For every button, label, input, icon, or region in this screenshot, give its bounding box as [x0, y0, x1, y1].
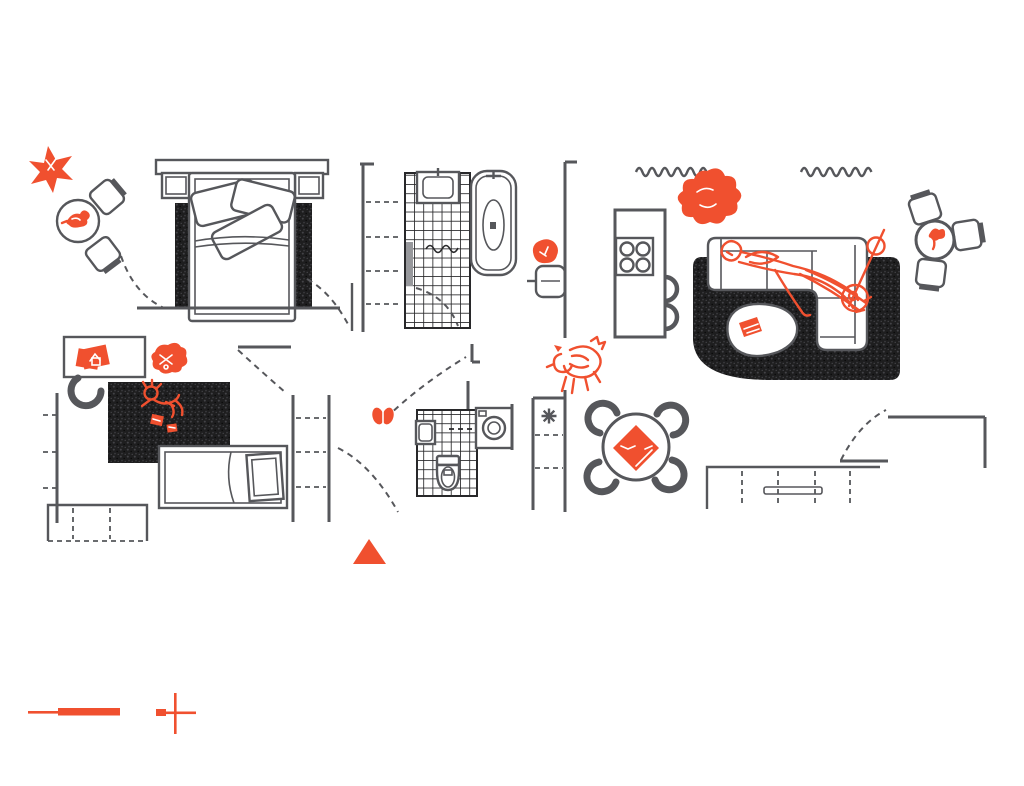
door-arc [121, 256, 164, 308]
bar-stool [665, 277, 677, 301]
dog [547, 337, 605, 393]
bedroom-kids [43, 337, 398, 541]
curtain-wave-left [636, 168, 706, 176]
terrace-right [707, 410, 985, 509]
closet-left [43, 393, 57, 523]
coffee-table [727, 304, 797, 356]
closet-mid [293, 395, 329, 522]
bathroom-wall-right [565, 162, 577, 338]
closet-shelves [366, 202, 399, 304]
asterisk-symbol [542, 409, 557, 424]
balcony-left [29, 146, 127, 274]
plan-marks [28, 693, 196, 734]
balcony-right-chair [915, 258, 946, 289]
toy-scribble [151, 343, 187, 374]
crosshair [156, 693, 196, 734]
bathtub [471, 171, 516, 275]
door-arc [841, 410, 886, 460]
balcony-right-chair [952, 219, 984, 251]
star-plant [29, 146, 73, 193]
living-room [693, 230, 900, 380]
curtain-wave-right [801, 168, 871, 176]
balcony-left-chair [84, 235, 123, 274]
bedroom-primary [121, 160, 399, 332]
closet-wall [360, 164, 374, 332]
single-bed [159, 446, 287, 508]
wall-cabinet [527, 266, 565, 297]
desk-chair [71, 378, 101, 406]
bathroom-main [405, 162, 577, 338]
butterfly [371, 406, 396, 425]
utility-closet [533, 390, 565, 512]
entrance-triangle [353, 539, 386, 564]
potted-plant [678, 168, 742, 224]
balcony-left-chair [88, 177, 127, 216]
hallway-marks [353, 406, 395, 564]
washing-machine [476, 408, 512, 448]
dresser [48, 505, 147, 541]
scale-bar-thick [58, 708, 120, 716]
door-arc [307, 279, 349, 326]
island-counter [615, 210, 665, 337]
balcony-right [907, 190, 984, 289]
bar-stool [665, 305, 677, 329]
door-arc [238, 350, 286, 393]
terrace-wall [840, 417, 985, 468]
floor-plan-canvas [0, 0, 1024, 786]
toilet [437, 456, 459, 490]
floor-plan-drawing [0, 0, 1024, 786]
sideboard-counter [707, 467, 880, 509]
scale-bar-thin [28, 711, 58, 714]
door-arc [386, 357, 466, 418]
dining-area [547, 337, 686, 492]
bathroom-second [386, 344, 565, 512]
door-arc [338, 448, 398, 512]
shower-screen [406, 242, 413, 286]
